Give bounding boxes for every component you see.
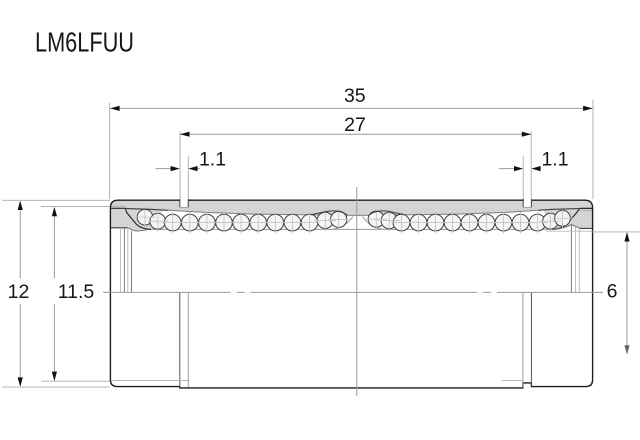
svg-text:27: 27 [344, 114, 366, 136]
svg-text:1.1: 1.1 [199, 149, 226, 171]
svg-text:1.1: 1.1 [541, 149, 568, 171]
svg-text:6: 6 [607, 281, 618, 303]
svg-text:11.5: 11.5 [58, 281, 95, 303]
svg-text:LM6LFUU: LM6LFUU [35, 27, 134, 58]
svg-text:35: 35 [344, 85, 366, 107]
svg-text:12: 12 [8, 281, 30, 303]
